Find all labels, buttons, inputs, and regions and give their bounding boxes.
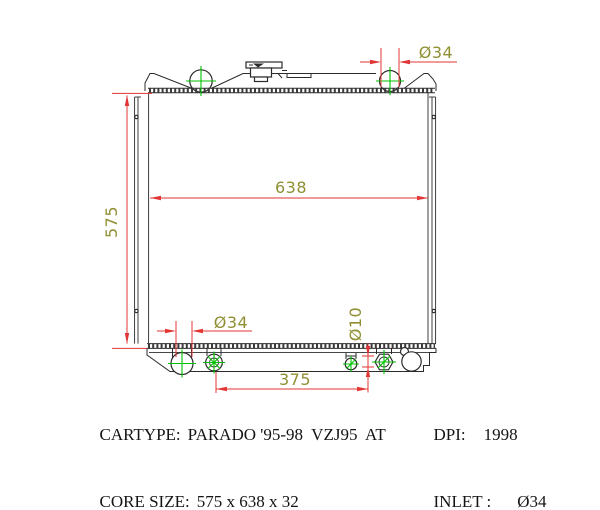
core-height-label: 575 — [102, 206, 121, 238]
spec-row-cartype: CARTYPE:PARADO '95-98 VZJ95 AT — [74, 401, 386, 469]
radiator-spec-sheet: 575 638 Ø34 Ø34 Ø10 — [0, 0, 600, 510]
inlet-label: INLET : — [434, 492, 492, 510]
core-width-label: 638 — [275, 178, 307, 197]
radiator-drawing: 575 638 Ø34 Ø34 Ø10 — [0, 0, 600, 400]
spec-row-core-size: CORE SIZE:575 x 638 x 32 — [74, 469, 386, 510]
inlet-value: Ø34 — [491, 492, 546, 510]
oil-cooler-length-label: 375 — [279, 370, 311, 389]
dpi-value: 1998 — [466, 425, 518, 444]
outlet-diameter-label: Ø34 — [214, 313, 248, 332]
crosshair-oil-fitting-left — [203, 352, 225, 374]
filler-cap — [246, 62, 287, 82]
core-size-label: CORE SIZE: — [100, 492, 190, 510]
spec-row-inlet: INLET :Ø34 — [408, 469, 547, 510]
core — [135, 88, 436, 348]
cartype-label: CARTYPE: — [100, 425, 181, 444]
crosshair-oil-fitting-right — [372, 350, 396, 374]
dimension-oil-pipe-diameter: Ø10 — [346, 307, 374, 393]
crosshair-top-port-left — [186, 66, 216, 96]
dimension-outlet-diameter: Ø34 — [157, 313, 252, 357]
drain-plug — [401, 348, 422, 372]
dimension-core-height: 575 — [102, 93, 152, 348]
overflow-tray — [287, 74, 311, 78]
inlet-diameter-label: Ø34 — [419, 43, 453, 62]
spec-column-left: CARTYPE:PARADO '95-98 VZJ95 AT CORE SIZE… — [74, 401, 386, 510]
spec-column-right: DPI:1998 INLET :Ø34 OUTLET:Ø34 — [408, 401, 547, 510]
spec-row-dpi: DPI:1998 — [408, 401, 547, 469]
dimension-inlet-diameter: Ø34 — [360, 43, 457, 87]
side-channel-right — [429, 97, 436, 344]
top-tank — [145, 62, 436, 92]
crosshair-oil-pipe — [343, 356, 359, 372]
core-size-value: 575 x 638 x 32 — [190, 492, 299, 510]
dimension-core-width: 638 — [150, 178, 428, 200]
dpi-label: DPI: — [434, 425, 466, 444]
top-tank-top-edge — [211, 74, 376, 89]
side-channel-left — [135, 97, 141, 344]
dimension-oil-cooler-length: 375 — [216, 370, 368, 393]
oil-pipe-diameter-label: Ø10 — [346, 307, 365, 341]
cartype-value: PARADO '95-98 VZJ95 AT — [181, 425, 386, 444]
